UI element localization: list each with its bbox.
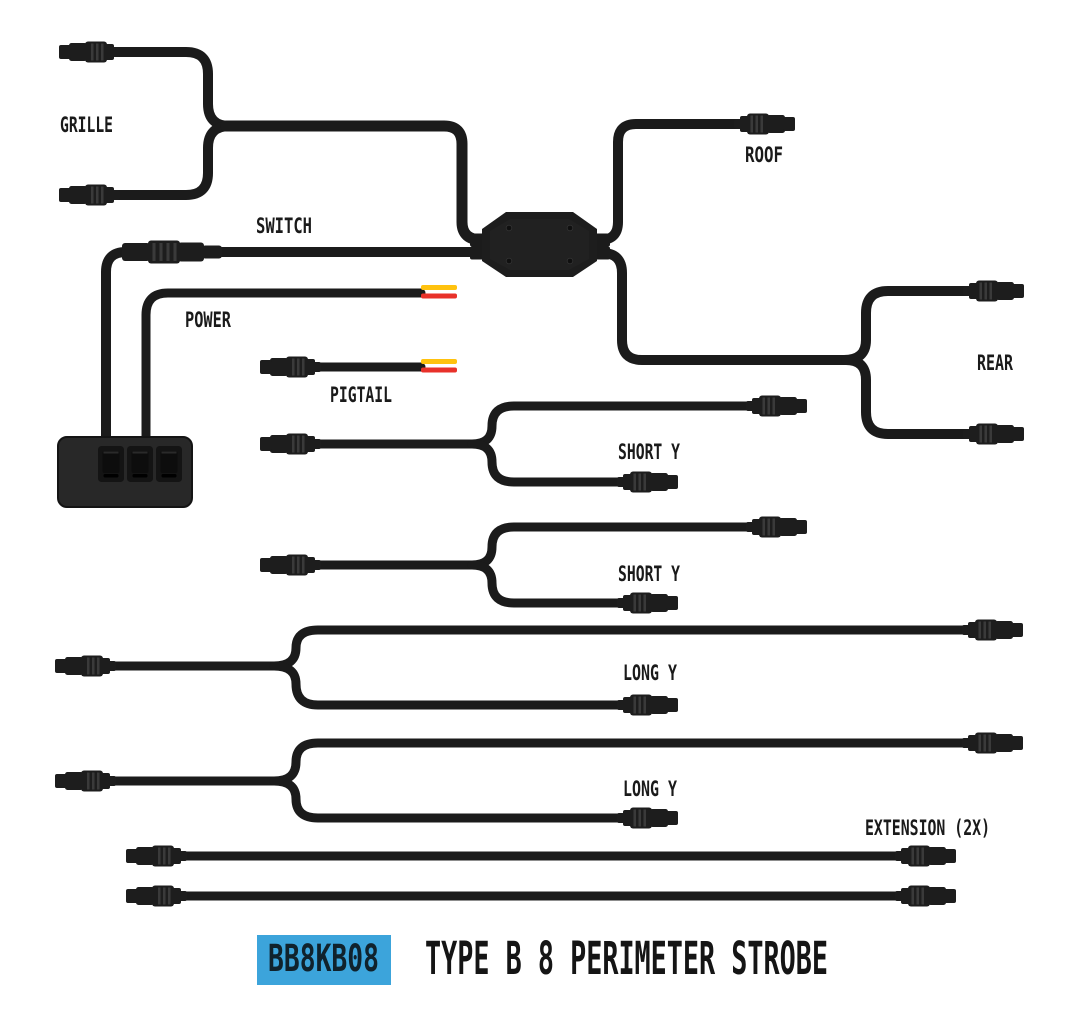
pigtail-connector (260, 357, 321, 378)
grille-label: GRILLE (60, 113, 113, 137)
rear-lower-cable (846, 360, 968, 434)
long-y2-label: LONG Y (623, 777, 677, 801)
grille-lower-connector (59, 185, 120, 206)
short-y2-label: SHORT Y (618, 562, 680, 586)
diagram-canvas: GRILLE SWITCH POWER PIGTAIL ROOF REAR SH… (0, 0, 1080, 1009)
module-face (490, 219, 589, 270)
grille-upper-branch-cable (116, 52, 230, 126)
short-y1-lower-connector (617, 472, 678, 493)
stripped-wires (421, 285, 457, 373)
rocker-switch-2 (127, 446, 153, 482)
switch-cable (106, 252, 486, 444)
long-y1-label: LONG Y (623, 661, 677, 685)
rocker-switch-3 (156, 446, 182, 482)
power-label: POWER (185, 308, 231, 332)
rear-lower-connector (963, 424, 1024, 445)
long-y1-upper-cable (274, 630, 967, 666)
long-y1-lower-connector (617, 695, 678, 716)
long-y2-left-connector (55, 771, 116, 792)
part-number-text: BB8KB08 (268, 937, 379, 980)
rear-label: REAR (977, 351, 1013, 375)
module-screw (506, 225, 512, 231)
long-y2-upper-connector (962, 733, 1023, 754)
short-y1-lower-cable (472, 444, 622, 482)
short-y1-upper-cable (472, 406, 749, 444)
product-title: TYPE B 8 PERIMETER STROBE (425, 932, 828, 985)
wiring-harness-diagram: GRILLE SWITCH POWER PIGTAIL ROOF REAR SH… (0, 0, 1080, 1009)
roof-cable (592, 124, 740, 240)
switch-panel (58, 437, 192, 507)
module-screw (567, 258, 573, 264)
pigtail-yellow-wire (421, 359, 457, 364)
pigtail-label: PIGTAIL (330, 383, 392, 407)
roof-label: ROOF (745, 143, 783, 167)
footer: BB8KB08 TYPE B 8 PERIMETER STROBE (257, 932, 828, 985)
module-screw (506, 258, 512, 264)
rear-upper-connector (963, 281, 1024, 302)
long-y1-lower-cable (274, 666, 622, 705)
extension-1-right-connector (895, 846, 956, 867)
module-screw (567, 225, 573, 231)
long-y1-upper-connector (962, 620, 1023, 641)
extension-2-right-connector (895, 886, 956, 907)
grille-lower-branch-cable (116, 126, 230, 195)
rocker-switch-1 (98, 446, 124, 482)
rear-trunk-and-upper-cable (592, 253, 968, 360)
grille-upper-connector (59, 42, 120, 63)
cable-group (106, 52, 968, 896)
long-y1-left-connector (55, 656, 116, 677)
extension-label: EXTENSION (2X) (865, 816, 990, 840)
switch-label: SWITCH (256, 214, 312, 238)
pigtail-red-wire (421, 368, 457, 373)
power-yellow-wire (421, 285, 457, 290)
short-y1-left-connector (260, 434, 321, 455)
long-y2-upper-cable (274, 743, 967, 781)
extension-2-left-connector (126, 886, 187, 907)
short-y1-upper-connector (746, 396, 807, 417)
short-y2-upper-connector (746, 517, 807, 538)
power-red-wire (421, 294, 457, 299)
switch-inline-connector (122, 241, 222, 264)
short-y2-lower-connector (617, 593, 678, 614)
short-y2-lower-cable (472, 565, 622, 603)
extension-1-left-connector (126, 846, 187, 867)
roof-connector (734, 114, 795, 135)
short-y2-left-connector (260, 555, 321, 576)
control-module (470, 212, 610, 277)
short-y1-label: SHORT Y (618, 440, 680, 464)
short-y2-upper-cable (472, 527, 749, 565)
long-y2-lower-cable (274, 781, 622, 818)
long-y2-lower-connector (617, 808, 678, 829)
